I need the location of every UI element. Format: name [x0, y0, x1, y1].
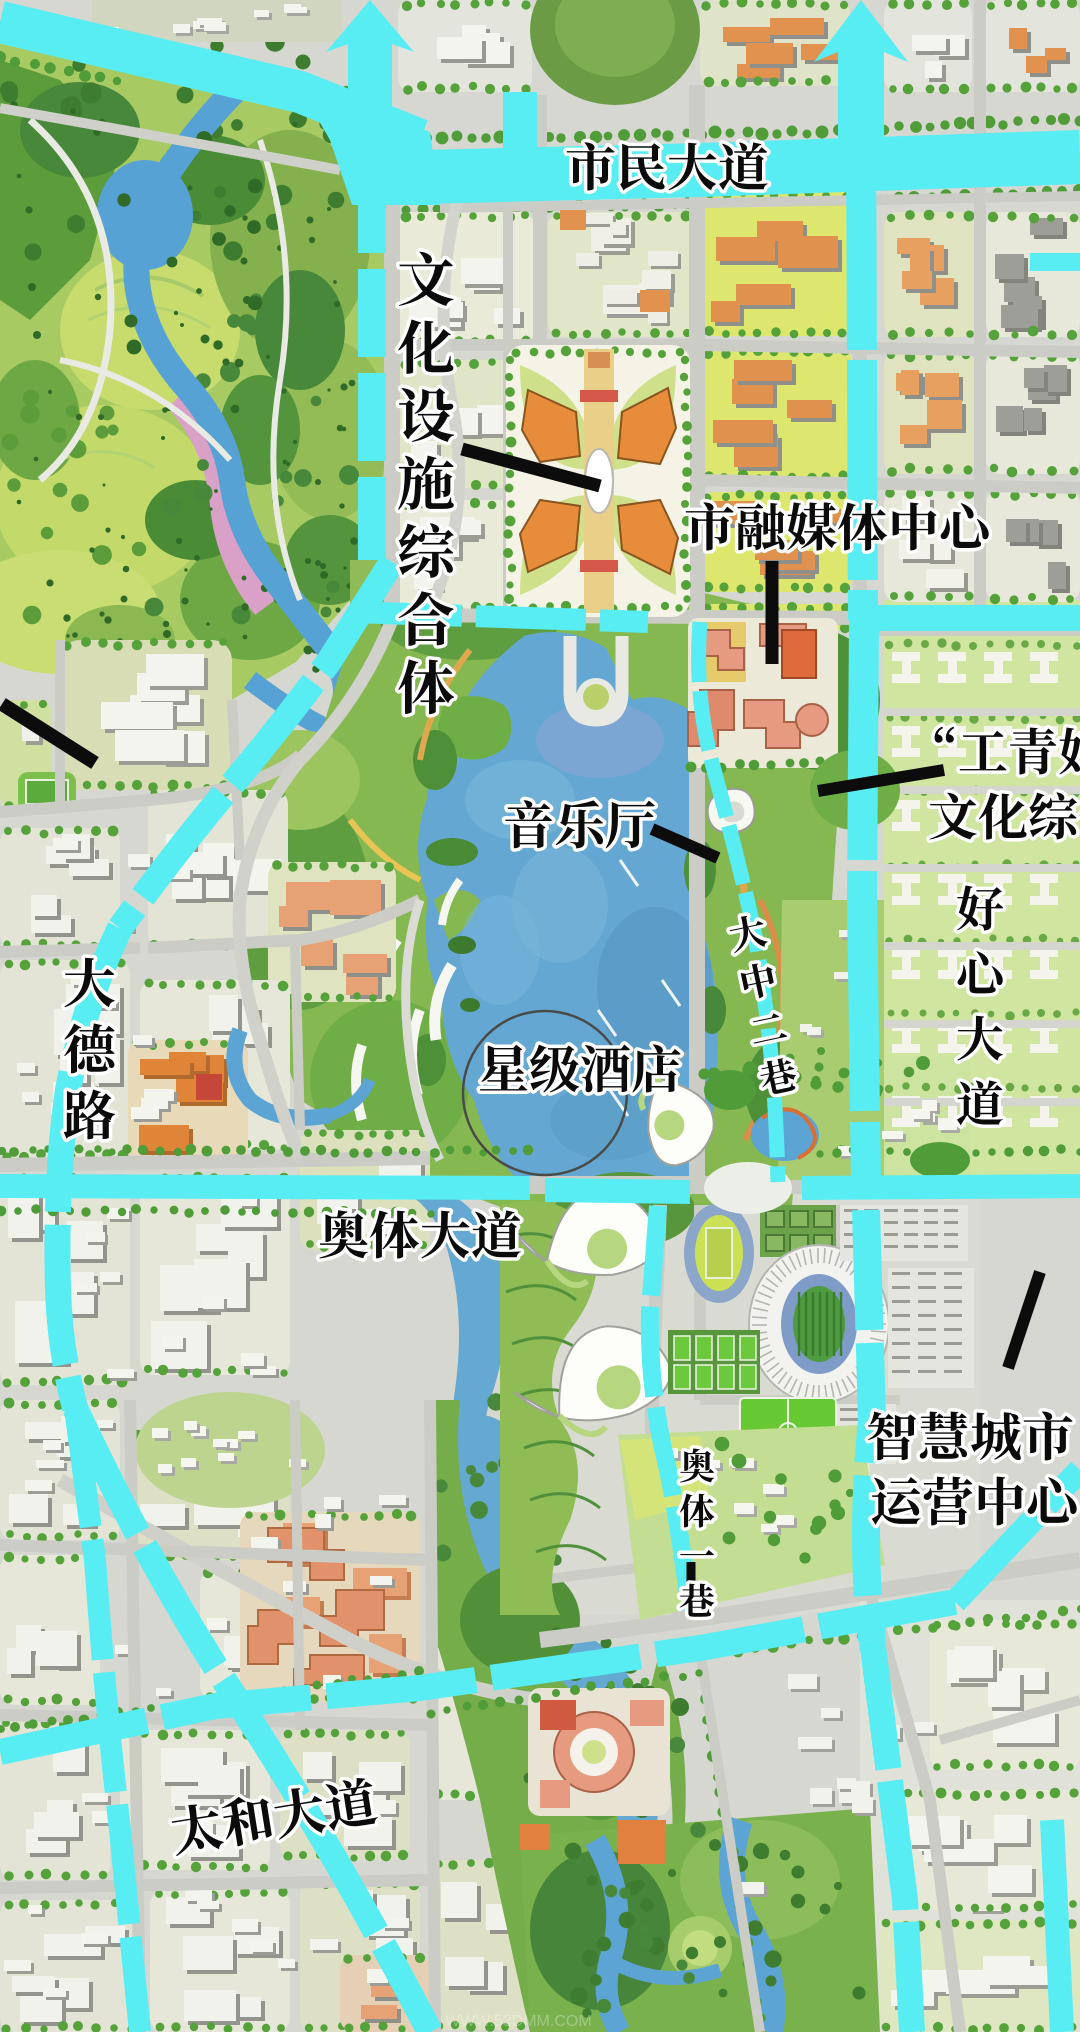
svg-text:WWW.53DMM.COM: WWW.53DMM.COM — [445, 2013, 592, 2030]
